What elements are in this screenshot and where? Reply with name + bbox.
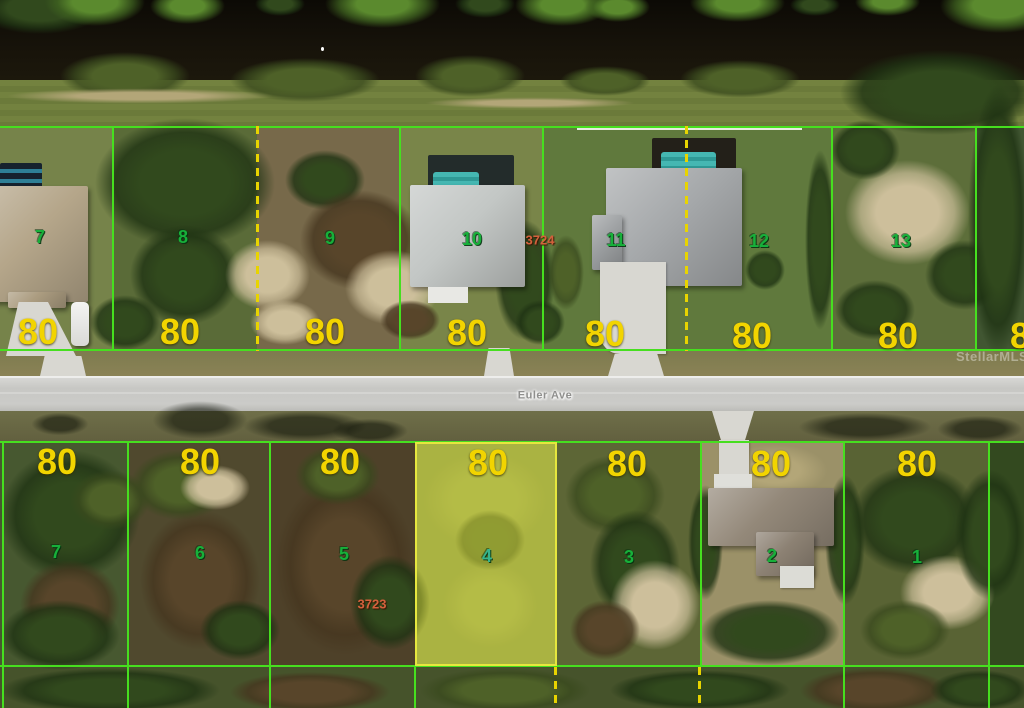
lot-line-vertical bbox=[2, 441, 4, 708]
vegetation-blob bbox=[745, 250, 785, 290]
lot-line-vertical bbox=[414, 665, 416, 708]
water-speck bbox=[321, 47, 324, 51]
vegetation-blob bbox=[230, 672, 390, 708]
vegetation-blob bbox=[90, 295, 160, 350]
lot-line-vertical bbox=[700, 441, 702, 666]
lot-frontage-label: 80 bbox=[160, 314, 200, 350]
lot-number: 6 bbox=[195, 544, 205, 562]
lot-frontage-label: 80 bbox=[751, 446, 791, 482]
lot-line-vertical bbox=[112, 126, 114, 351]
lot-frontage-label: 80 bbox=[320, 444, 360, 480]
lot-frontage-label: 80 bbox=[897, 446, 937, 482]
watermark: StellarMLS bbox=[956, 349, 1024, 364]
parked-car bbox=[71, 302, 89, 346]
vegetation-blob bbox=[700, 600, 840, 665]
lot-line-dashed bbox=[256, 126, 259, 351]
rear-fence-line bbox=[577, 128, 802, 130]
lot-frontage-label: 80 bbox=[305, 314, 345, 350]
lot-line-vertical bbox=[269, 441, 271, 708]
lot-frontage-label: 80 bbox=[180, 444, 220, 480]
aerial-parcel-map: 80 80 80 80 80 80 80 80 80 80 80 80 80 8… bbox=[0, 0, 1024, 708]
lot-line-dashed bbox=[685, 126, 688, 351]
vegetation-blob bbox=[0, 668, 220, 708]
lot-frontage-label: 80 bbox=[732, 318, 772, 354]
lanai bbox=[428, 287, 468, 303]
lot-number-highlighted: 4 bbox=[482, 547, 492, 565]
vegetation-blob bbox=[380, 300, 440, 340]
lot-line-dashed bbox=[554, 667, 557, 708]
driveway bbox=[484, 348, 514, 376]
vegetation-blob bbox=[800, 668, 950, 708]
road-center-line bbox=[0, 392, 1024, 394]
tree-shadow bbox=[150, 400, 250, 440]
vegetation-blob bbox=[415, 55, 525, 97]
road-edge-line bbox=[0, 376, 1024, 378]
vegetation-blob bbox=[515, 300, 565, 345]
lot-line-horizontal bbox=[0, 126, 1024, 128]
lot-number: 2 bbox=[767, 547, 777, 565]
driveway-apron bbox=[608, 354, 664, 376]
vegetation-blob bbox=[200, 600, 280, 660]
dirt-patch bbox=[225, 240, 310, 310]
lot-line-vertical bbox=[399, 126, 401, 351]
lot-line-vertical bbox=[988, 441, 990, 708]
lot-line-dashed bbox=[698, 667, 701, 708]
lot-number: 13 bbox=[891, 232, 911, 250]
lot-frontage-label: 80 bbox=[607, 446, 647, 482]
vegetation-blob bbox=[570, 600, 640, 660]
lot-line-vertical bbox=[831, 126, 833, 351]
dirt-path bbox=[0, 88, 280, 104]
vegetation-blob bbox=[560, 66, 650, 96]
lot-frontage-label: 80 bbox=[447, 315, 487, 351]
lot-frontage-label: 80 bbox=[878, 318, 918, 354]
driveway-pad bbox=[714, 474, 752, 488]
lot-line-vertical bbox=[975, 126, 977, 351]
lot-number: 7 bbox=[51, 543, 61, 561]
parcel-id: 3723 bbox=[358, 598, 387, 611]
lot-number: 9 bbox=[325, 229, 335, 247]
lot-number: 1 bbox=[912, 548, 922, 566]
lot-frontage-label: 80 bbox=[18, 314, 58, 350]
lot-number: 12 bbox=[749, 232, 769, 250]
screened-porch bbox=[780, 566, 814, 588]
dirt-path bbox=[420, 97, 640, 109]
lot-frontage-label: 80 bbox=[37, 444, 77, 480]
vegetation-blob bbox=[860, 600, 950, 660]
tree-shadow bbox=[795, 412, 935, 442]
driveway-apron bbox=[40, 356, 86, 376]
lot-frontage-label: 80 bbox=[468, 445, 508, 481]
tree-shadow bbox=[30, 412, 90, 436]
lot-number: 11 bbox=[606, 231, 625, 249]
lot-number: 8 bbox=[178, 228, 188, 246]
parcel-id: 3724 bbox=[526, 234, 555, 247]
lot-number: 3 bbox=[624, 548, 634, 566]
lot-line-vertical bbox=[843, 441, 845, 708]
street-name-label: Euler Ave bbox=[518, 391, 572, 402]
lot-line-vertical bbox=[127, 441, 129, 708]
tree-shadow bbox=[935, 415, 1024, 443]
lot-line-horizontal bbox=[0, 349, 1024, 351]
lot-number: 7 bbox=[35, 228, 45, 246]
vegetation-blob bbox=[420, 668, 590, 708]
lot-number: 5 bbox=[339, 545, 349, 563]
lot-frontage-label: 80 bbox=[585, 316, 625, 352]
vegetation-blob bbox=[930, 670, 1024, 708]
vegetation-blob bbox=[830, 120, 900, 180]
vegetation-blob bbox=[680, 60, 800, 98]
lot-number: 10 bbox=[462, 230, 482, 248]
vegetation-blob bbox=[0, 600, 120, 670]
